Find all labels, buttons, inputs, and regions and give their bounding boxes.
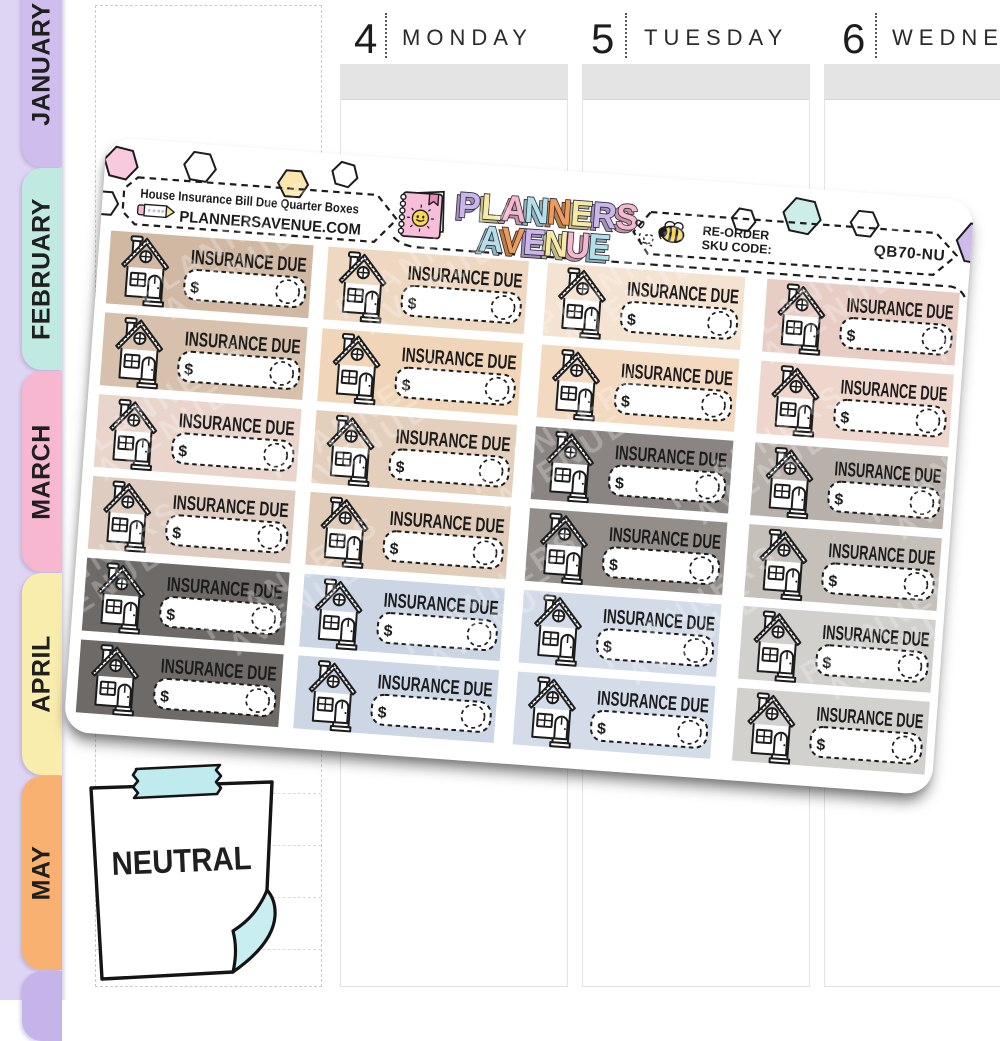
svg-text:$: $	[395, 459, 405, 477]
svg-text:$: $	[846, 328, 856, 346]
svg-text:S: S	[614, 197, 639, 239]
svg-text:$: $	[840, 409, 850, 427]
svg-text:$: $	[389, 541, 399, 559]
svg-text:$: $	[383, 623, 393, 641]
svg-text:$: $	[596, 720, 606, 738]
svg-text:$: $	[160, 688, 170, 706]
svg-text:$: $	[608, 557, 618, 575]
svg-text:$: $	[614, 475, 624, 493]
svg-text:NEUTRAL: NEUTRAL	[111, 839, 252, 882]
svg-text:$: $	[828, 573, 838, 591]
svg-text:$: $	[377, 704, 387, 722]
svg-text:$: $	[834, 491, 844, 509]
svg-text:$: $	[816, 737, 826, 755]
svg-text:$: $	[166, 607, 176, 625]
svg-text:$: $	[178, 443, 188, 461]
